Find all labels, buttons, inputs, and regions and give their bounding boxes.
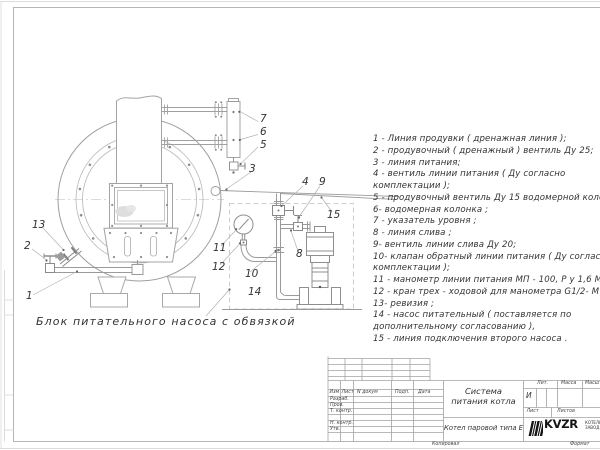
tb-kopiroval: Копировал [432,443,459,448]
callout-12: 12 [212,262,225,273]
drawing-caption: Блок питательного насоса с обвязкой [36,316,296,327]
legend-line: 10- клапан обратный линии питания ( Ду с… [373,252,600,264]
legend-line: комплектации ); [373,181,600,193]
callout-11: 11 [213,243,226,254]
legend-line: 7 - указатель уровня ; [373,216,600,228]
manometer [234,215,277,262]
legend-line: 4 - вентиль линии питания ( Ду согласно [373,169,600,181]
tb-lit-header: Лит. [537,382,548,387]
legend-line: 12 - кран трех - ходовой для манометра G… [373,287,600,299]
legend-line: 11 - манометр линии питания МП - 100, Р … [373,275,600,287]
legend-line: 6- водомерная колонка ; [373,205,600,217]
document-subtitle: Котел паровой типа Е [444,425,523,432]
chimney-stack [117,96,162,196]
callout-5: 5 [260,140,267,151]
legend-line: 14 - насос питательный ( поставляется по [373,310,600,322]
callout-10: 10 [245,269,258,280]
callout-15: 15 [327,210,340,221]
callout-7: 7 [260,114,267,125]
callout-13: 13 [32,220,45,231]
legend-line: 13- ревизия ; [373,299,600,311]
water-level-column [162,99,246,174]
tb-prov: Пров. [330,404,344,409]
boiler-supports [91,277,200,307]
feed-line [211,187,399,200]
callout-3: 3 [249,164,256,175]
callout-9: 9 [319,177,326,188]
document-title-line2: питания котла [444,397,523,407]
legend-line: 9- вентиль линии слива Ду 20; [373,240,600,252]
tb-col-izm: Изм [330,391,340,396]
boiler-lower-plate [104,228,178,262]
legend-line: 1 - Линия продувки ( дренажная линия ); [373,134,600,146]
tb-massa-header: Масса [561,382,576,387]
legend-line: 3 - линия питания; [373,158,600,170]
tb-col-podp: Подп. [395,391,410,396]
tb-listov-label: Листов [557,410,575,415]
legend-line: 15 - линия подключения второго насоса . [373,334,600,346]
drawing-sheet: 1 - Линия продувки ( дренажная линия ); … [0,0,600,450]
tb-col-list: Лист [342,391,354,396]
tb-litera-value: И [526,392,532,400]
kvzr-logo-subtext: КОТЕЛЬНЫЙ ЗАВОД Р [585,421,600,430]
callout-8: 8 [296,249,303,260]
kvzr-logo-subtext-line2: ЗАВОД Р [585,426,600,431]
feed-pump [297,227,343,310]
legend-line: 2 - продувочный ( дренажный ) вентиль Ду… [373,146,600,158]
callout-2: 2 [24,241,31,252]
tb-masshtab-header: Масшта [585,382,600,387]
tb-col-ndokum: N докум [357,391,378,396]
document-title: Система питания котла [444,387,523,407]
legend-line: 8 - линия слива ; [373,228,600,240]
boiler-door [110,184,173,229]
legend-line: дополнительному согласованию ), [373,322,600,334]
tb-utv: Утв. [330,428,340,433]
callout-4: 4 [302,177,309,188]
legend-list: 1 - Линия продувки ( дренажная линия ); … [373,134,600,346]
tb-list-label: Лист [527,410,539,415]
kvzr-logo-icon [527,420,543,437]
legend-line: 5 - продувочный вентиль Ду 15 водомерной… [373,193,600,205]
legend-line: комплектации ); [373,263,600,275]
tb-format: Формат [570,443,589,448]
tb-t-kontr: Т. контр. [330,410,352,415]
kvzr-logo-text: KVZR [544,419,578,431]
tb-col-data: Дата [418,391,430,396]
callout-1: 1 [26,291,33,302]
tb-n-kontr: Н. контр. [330,422,353,427]
callout-6: 6 [260,127,267,138]
callout-14: 14 [248,287,261,298]
